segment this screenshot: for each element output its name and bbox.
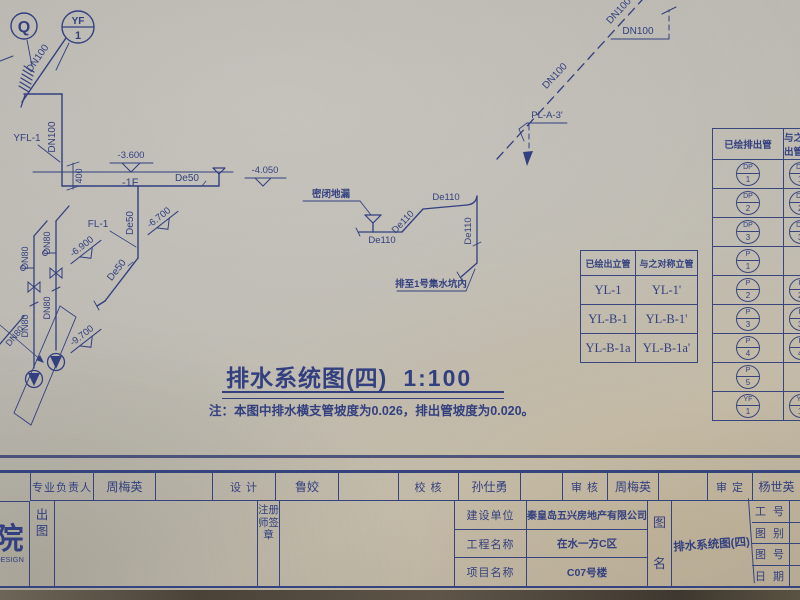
frame-border-line — [0, 455, 800, 458]
riser-table: 已绘出立管 与之对称立管 YL-1 YL-1' YL-B-1 YL-B-1' Y… — [580, 250, 698, 363]
field-label: 审 定 — [708, 473, 753, 500]
fl1-label: FL-1 — [88, 219, 109, 230]
vent-symbol-yf1: YF 1 — [56, 11, 94, 70]
field-label: 工 号 — [752, 501, 790, 522]
pipe-symbol-p5: P5 — [736, 365, 760, 389]
photo-bottom-shadow — [0, 590, 800, 600]
riser-cell: YL-B-1a — [581, 334, 636, 362]
to-sump-label: 排至1号集水坑内 — [395, 278, 467, 290]
pipe-symbol-dp3: DP3 — [736, 220, 760, 244]
field-value: 鲁姣 — [276, 473, 339, 500]
flow-arrowhead — [523, 151, 533, 166]
institute-logo: 院 DESIGN — [0, 501, 30, 586]
drawing-title-text: 排水系统图(四) — [226, 365, 387, 391]
title-block: 专业负责人 周梅英 设 计 鲁姣 校 核 孙仕勇 审 核 周梅英 审 定 杨世英… — [0, 470, 800, 588]
institute-character: 院 — [0, 525, 24, 555]
pipe-symbol-dp2-prime: DP2' — [789, 191, 800, 215]
pipe-symbol-yf1: YF1 — [736, 394, 760, 418]
table-row: DP1 DP1' — [713, 160, 800, 189]
project-row: 项目名称 C07号楼 — [455, 558, 647, 586]
field-row: 工 号 — [752, 501, 800, 523]
de50-horizontal-run: De50 — [62, 168, 225, 186]
pl-a-3-label: PL-A-3' — [531, 110, 563, 121]
field-label: 校 核 — [399, 473, 459, 500]
slope-note: 注：本图中排水横支管坡度为0.026，排出管坡度为0.020。 — [209, 400, 534, 419]
institute-latin: DESIGN — [0, 555, 24, 564]
dimension-text: 400 — [74, 168, 84, 183]
riser-cell: YL-B-1' — [636, 305, 697, 333]
table-row: YF1 YF1' — [713, 392, 800, 420]
table-row: P5 — [713, 363, 800, 392]
pipe-symbol-dp1: DP1 — [736, 162, 760, 186]
dn80-label: DN80 — [20, 246, 30, 269]
pipe-symbol-p4: P4 — [736, 336, 760, 360]
dn80-label: DN80 — [42, 296, 52, 319]
field-value: 周梅英 — [608, 473, 659, 500]
empty-cell — [339, 473, 399, 500]
drawing-name-value: 排水系统图(四) — [669, 498, 755, 588]
table-row: YL-B-1 YL-B-1' — [581, 305, 697, 334]
field-label: 工程名称 — [455, 530, 527, 558]
elevation-4050: -4.050 — [245, 165, 286, 186]
empty-cell — [659, 473, 708, 500]
outlet-col-header: 与之对称排出管 — [784, 129, 800, 159]
pipe-symbol-dp1-prime: DP1' — [789, 162, 800, 186]
field-row: 图 别 — [752, 523, 800, 545]
pipe-symbol-p2-prime: P2' — [789, 278, 800, 302]
riser-cell: YL-B-1 — [581, 305, 636, 333]
dn80-label: DN80 — [42, 231, 52, 254]
field-row: 日 期 — [752, 566, 800, 587]
drawing-scale: 1:100 — [403, 365, 472, 391]
drawing-title: 排水系统图(四)1:100 — [226, 359, 472, 393]
pipe-symbol-dp2: DP2 — [736, 191, 760, 215]
pipe-symbol-p3: P3 — [736, 307, 760, 331]
floor-label: -1F — [122, 177, 139, 189]
pipe-symbol-p2: P2 — [736, 278, 760, 302]
table-row: P3 P3' — [713, 305, 800, 334]
project-info: 建设单位 秦皇岛五兴房地产有限公司 工程名称 在水一方C区 项目名称 C07号楼 — [455, 501, 648, 586]
field-label: 图 别 — [752, 523, 790, 544]
pipe-symbol-dp3-prime: DP3' — [789, 220, 800, 244]
title-block-lower: 院 DESIGN 出图 注册师签章 建设单位 秦皇岛五兴房地产有限公司 工程名称… — [0, 501, 800, 586]
field-row: 图 号 — [752, 544, 800, 566]
de110-label: De110 — [390, 209, 417, 236]
drawing-photo: { "colors": {"ink": "#2e3c7e", "paper": … — [0, 0, 800, 600]
field-label: 建设单位 — [455, 501, 527, 529]
fl1-branch: De50 FL-1 De50 — [88, 186, 138, 310]
table-row: DP3 DP3' — [713, 218, 800, 247]
field-value: 秦皇岛五兴房地产有限公司 — [527, 501, 647, 529]
floor-drain-label: 密闭地漏 — [311, 188, 351, 200]
pump-icon — [28, 373, 40, 386]
title-block-row1: 专业负责人 周梅英 设 计 鲁姣 校 核 孙仕勇 审 核 周梅英 审 定 杨世英 — [30, 473, 800, 501]
project-row: 建设单位 秦皇岛五兴房地产有限公司 — [455, 501, 647, 530]
elevation-6700: -6.700 — [141, 202, 183, 241]
de110-drain-run: 密闭地漏 De110 De110 De110 De110 排至1号集水坑内 — [303, 188, 481, 291]
edge-fragment — [0, 56, 13, 61]
riser-cell: YL-1' — [636, 276, 697, 304]
de50-label: De50 — [105, 257, 129, 283]
de50-label: De50 — [125, 211, 136, 235]
pipe-symbol-p1: P1 — [736, 249, 760, 273]
title-underline — [222, 391, 504, 399]
field-label: 日 期 — [752, 566, 790, 587]
yf-label: YF — [72, 16, 85, 27]
de110-label: De110 — [432, 192, 459, 203]
riser-cell: YL-B-1a' — [636, 334, 697, 362]
table-row: YL-B-1a YL-B-1a' — [581, 334, 697, 362]
field-value: 杨世英 — [753, 473, 800, 500]
signature-area — [55, 501, 258, 586]
drawing-name-label: 图名 — [648, 501, 672, 586]
pump-icon — [50, 356, 62, 369]
elevation-text: -3.600 — [118, 150, 145, 161]
pipe-symbol-yf1-prime: YF1' — [789, 394, 800, 418]
riser-col-header: 已绘出立管 — [581, 251, 636, 275]
plot-output-label: 出图 — [30, 501, 55, 586]
field-value: 在水一方C区 — [527, 530, 647, 558]
table-row: DP2 DP2' — [713, 189, 800, 218]
yfl1-label: YFL-1 — [13, 133, 41, 144]
drawing-number-fields: 工 号 图 别 图 号 日 期 — [752, 501, 800, 586]
field-label: 审 核 — [563, 473, 608, 500]
de50-label: De50 — [175, 173, 199, 184]
de110-label: De110 — [368, 235, 395, 246]
empty-cell — [156, 473, 213, 500]
outlet-col-header: 已绘排出管 — [713, 129, 784, 159]
table-row: YL-1 YL-1' — [581, 276, 697, 305]
elevation-3600: -3.600 — [110, 150, 153, 172]
field-label: 项目名称 — [455, 558, 527, 586]
q-label: Q — [18, 19, 30, 36]
leader-arrowhead — [36, 355, 44, 363]
dn100-label: DN100 — [622, 26, 654, 37]
elevation-9700: -9.700 — [64, 320, 106, 359]
field-value: C07号楼 — [527, 558, 647, 586]
field-label: 设 计 — [213, 473, 276, 500]
riser-cell: YL-1 — [581, 276, 636, 304]
riser-col-header: 与之对称立管 — [636, 251, 697, 275]
table-row: P1 — [713, 247, 800, 276]
pipe-symbol-p3-prime: P3' — [789, 307, 800, 331]
field-value: 孙仕勇 — [459, 473, 521, 500]
field-label: 专业负责人 — [31, 473, 94, 500]
field-label: 图 号 — [752, 544, 790, 565]
yf-number: 1 — [75, 30, 81, 42]
pipe-symbol-p4-prime: P4' — [789, 336, 800, 360]
pl-a-3-callout: PL-A-3' — [519, 110, 567, 166]
dn100-riser: DN100 DN100 — [19, 38, 66, 186]
dn80-pump-pipes: DN80 DN80 DN80 DN80 DN80 — [0, 206, 69, 368]
empty-cell — [521, 473, 563, 500]
table-row: P2 P2' — [713, 276, 800, 305]
registered-engineer-seal-label: 注册师签章 — [258, 501, 280, 586]
dn100-label: DN100 — [541, 61, 571, 92]
de110-label: De110 — [463, 217, 474, 244]
project-row: 工程名称 在水一方C区 — [455, 530, 647, 559]
table-row: P4 P4' — [713, 334, 800, 363]
elevation-6900: -6.900 — [64, 231, 106, 270]
outlet-table: 已绘排出管 与之对称排出管 DP1 DP1' DP2 DP2' DP3 DP3'… — [712, 128, 800, 421]
dn100-dashed-run: DN100 DN100 DN100 — [497, 0, 676, 159]
sump-pit-pumps — [0, 306, 76, 425]
dn100-label: DN100 — [47, 121, 58, 153]
elevation-text: -4.050 — [252, 165, 279, 176]
field-value: 周梅英 — [94, 473, 156, 500]
seal-area — [280, 501, 455, 586]
